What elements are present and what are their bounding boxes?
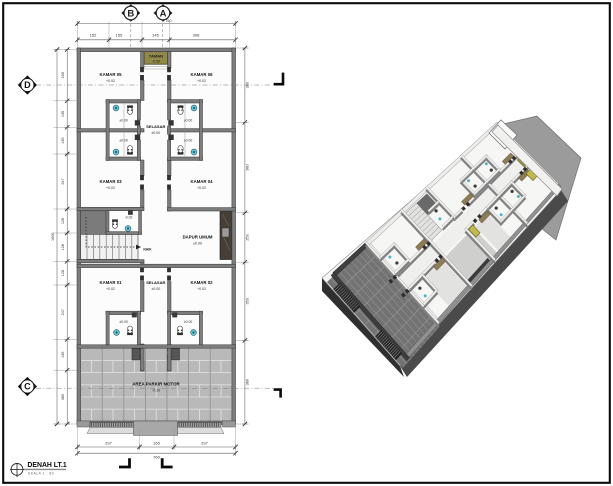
svg-text:297: 297 [201, 441, 208, 446]
svg-text:±0.00: ±0.00 [119, 320, 128, 324]
svg-text:±0.00: ±0.00 [119, 139, 128, 143]
svg-text:380: 380 [246, 164, 250, 170]
svg-text:B: B [127, 8, 134, 19]
svg-text:145: 145 [152, 33, 159, 38]
svg-text:308: 308 [193, 33, 200, 38]
svg-text:±0.00: ±0.00 [184, 119, 193, 123]
svg-text:+0.02: +0.02 [197, 287, 206, 291]
svg-text:165: 165 [153, 441, 160, 446]
svg-text:-0.10: -0.10 [152, 389, 160, 393]
svg-text:±0.00: ±0.00 [119, 119, 128, 123]
svg-text:+0.02: +0.02 [106, 186, 115, 190]
svg-text:360: 360 [61, 394, 65, 400]
svg-text:KAMAR 03: KAMAR 03 [100, 179, 123, 184]
svg-text:128: 128 [61, 270, 65, 276]
svg-text:NAIK: NAIK [143, 248, 152, 252]
svg-text:±0.00: ±0.00 [184, 139, 193, 143]
svg-text:KAMAR 05: KAMAR 05 [100, 72, 123, 77]
svg-text:±0.00: ±0.00 [193, 242, 202, 246]
svg-text:C: C [24, 382, 31, 392]
svg-text:KAMAR 02: KAMAR 02 [191, 280, 214, 285]
svg-text:+0.02: +0.02 [106, 79, 115, 83]
svg-text:135: 135 [61, 138, 65, 144]
svg-text:+0.02: +0.02 [106, 287, 115, 291]
svg-text:1600: 1600 [51, 233, 55, 241]
svg-text:KAMAR 06: KAMAR 06 [191, 72, 214, 77]
svg-text:-0.50: -0.50 [152, 59, 160, 63]
svg-text:+0.02: +0.02 [197, 186, 206, 190]
svg-text:±0.00: ±0.00 [151, 287, 160, 291]
svg-text:DAPUR UMUM: DAPUR UMUM [183, 235, 213, 240]
svg-text:152: 152 [90, 33, 97, 38]
svg-text:SELASAR: SELASAR [146, 124, 165, 129]
svg-text:AREA PARKIR MOTOR: AREA PARKIR MOTOR [132, 382, 180, 387]
svg-text:KAMAR 01: KAMAR 01 [100, 280, 123, 285]
svg-text:±0.00: ±0.00 [151, 131, 160, 135]
svg-text:A: A [160, 8, 167, 19]
svg-text:297: 297 [105, 441, 112, 446]
svg-text:126: 126 [61, 218, 65, 224]
svg-text:353: 353 [246, 298, 250, 304]
svg-text:380: 380 [246, 379, 250, 385]
svg-text:200: 200 [61, 72, 65, 78]
svg-text:247: 247 [61, 309, 65, 315]
svg-text:±0.00: ±0.00 [184, 320, 193, 324]
svg-text:128: 128 [61, 244, 65, 250]
svg-text:SKALA 1 : 80: SKALA 1 : 80 [28, 471, 54, 475]
svg-text:TAMAN: TAMAN [149, 53, 163, 58]
svg-text:-0.02: -0.02 [125, 216, 133, 220]
svg-text:135: 135 [61, 352, 65, 358]
svg-text:+0.02: +0.02 [197, 79, 206, 83]
svg-text:D: D [24, 80, 31, 90]
svg-text:155: 155 [116, 33, 123, 38]
svg-text:DENAH LT.1: DENAH LT.1 [27, 462, 66, 469]
svg-text:KAMAR 04: KAMAR 04 [191, 179, 214, 184]
svg-text:247: 247 [61, 178, 65, 184]
svg-text:135: 135 [61, 111, 65, 117]
svg-text:253: 253 [246, 234, 250, 240]
svg-text:760: 760 [153, 455, 160, 460]
svg-text:SELASAR: SELASAR [146, 280, 165, 285]
